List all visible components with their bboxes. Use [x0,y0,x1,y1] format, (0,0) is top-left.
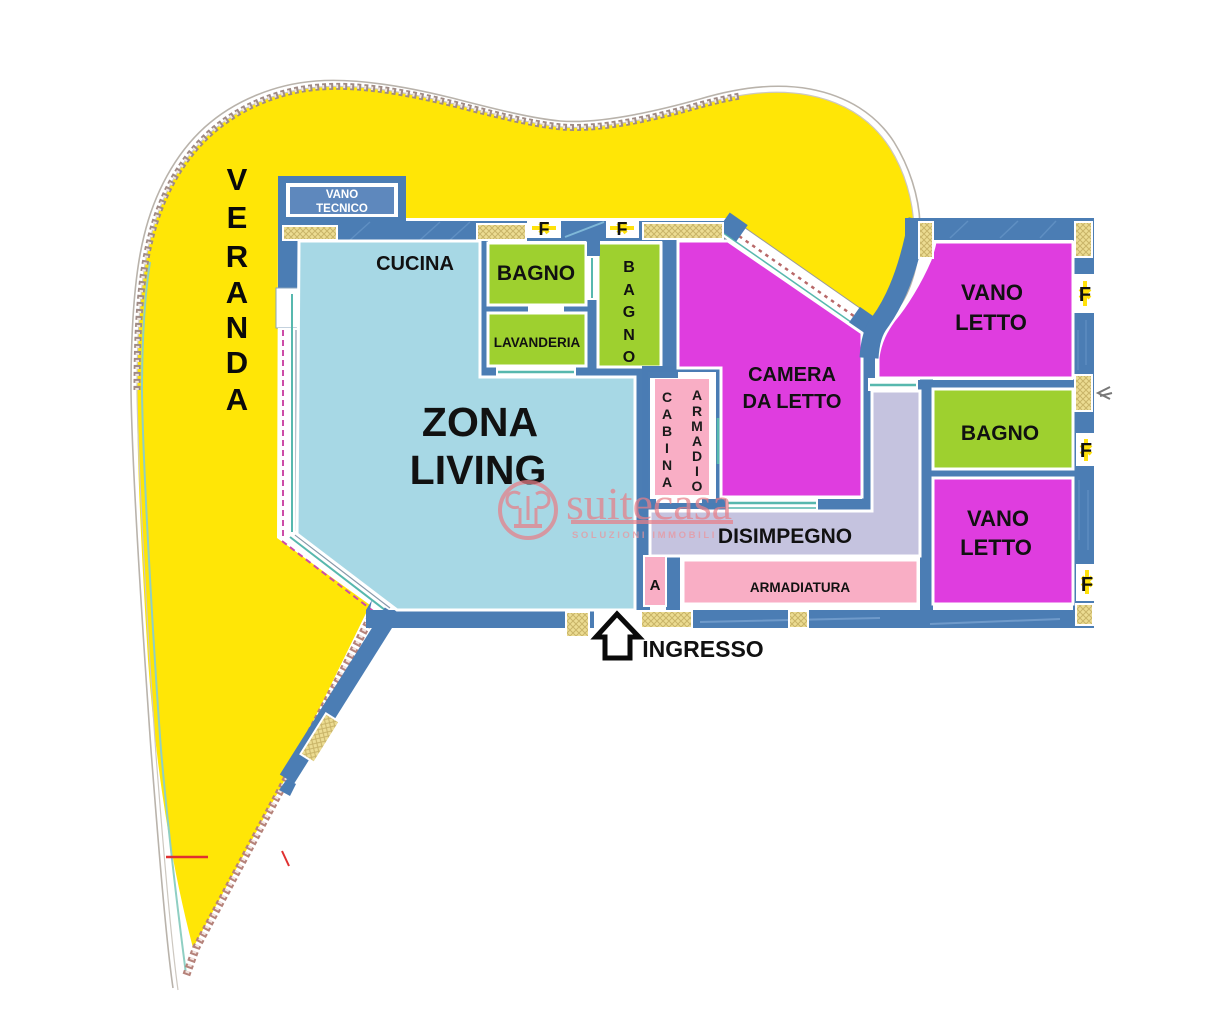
svg-text:R: R [226,239,248,274]
svg-text:BAGNO: BAGNO [497,262,575,285]
svg-text:LETTO: LETTO [955,310,1027,335]
svg-text:F: F [539,219,550,239]
svg-text:F: F [1080,440,1092,462]
svg-text:V: V [227,162,248,197]
svg-text:LAVANDERIA: LAVANDERIA [494,335,581,350]
svg-text:E: E [227,200,248,235]
svg-text:B: B [623,259,635,276]
svg-text:O: O [623,349,635,366]
svg-text:CAMERA: CAMERA [748,364,836,386]
svg-text:SOLUZIONI IMMOBILI: SOLUZIONI IMMOBILI [572,530,717,541]
svg-text:LIVING: LIVING [410,447,547,493]
svg-text:VANO: VANO [961,280,1023,305]
svg-text:M: M [691,418,703,434]
svg-text:DISIMPEGNO: DISIMPEGNO [718,525,852,548]
svg-text:A: A [692,387,702,403]
svg-text:G: G [623,304,635,321]
svg-text:F: F [617,219,628,239]
svg-text:VANO: VANO [967,506,1029,531]
svg-text:C: C [662,389,672,405]
svg-text:ARMADIATURA: ARMADIATURA [750,580,850,595]
svg-text:TECNICO: TECNICO [316,203,368,215]
svg-text:LETTO: LETTO [960,535,1032,560]
svg-text:N: N [623,327,635,344]
svg-text:F: F [1079,284,1091,306]
svg-text:A: A [650,577,661,594]
svg-text:N: N [226,310,248,345]
svg-text:A: A [226,382,248,417]
svg-text:D: D [226,345,248,380]
svg-text:A: A [692,433,702,449]
svg-text:F: F [1081,574,1093,596]
svg-text:N: N [662,457,672,473]
svg-text:A: A [226,275,248,310]
svg-text:INGRESSO: INGRESSO [642,636,763,662]
svg-text:CUCINA: CUCINA [376,253,454,275]
svg-text:R: R [692,403,702,419]
svg-text:ZONA: ZONA [422,399,538,445]
svg-text:A: A [662,406,672,422]
svg-text:D: D [692,448,702,464]
svg-text:DA LETTO: DA LETTO [743,391,842,413]
svg-text:BAGNO: BAGNO [961,422,1039,445]
svg-text:I: I [665,440,669,456]
svg-text:I: I [695,463,699,479]
svg-text:B: B [662,423,672,439]
svg-text:VANO: VANO [326,189,358,201]
svg-text:A: A [623,282,635,299]
